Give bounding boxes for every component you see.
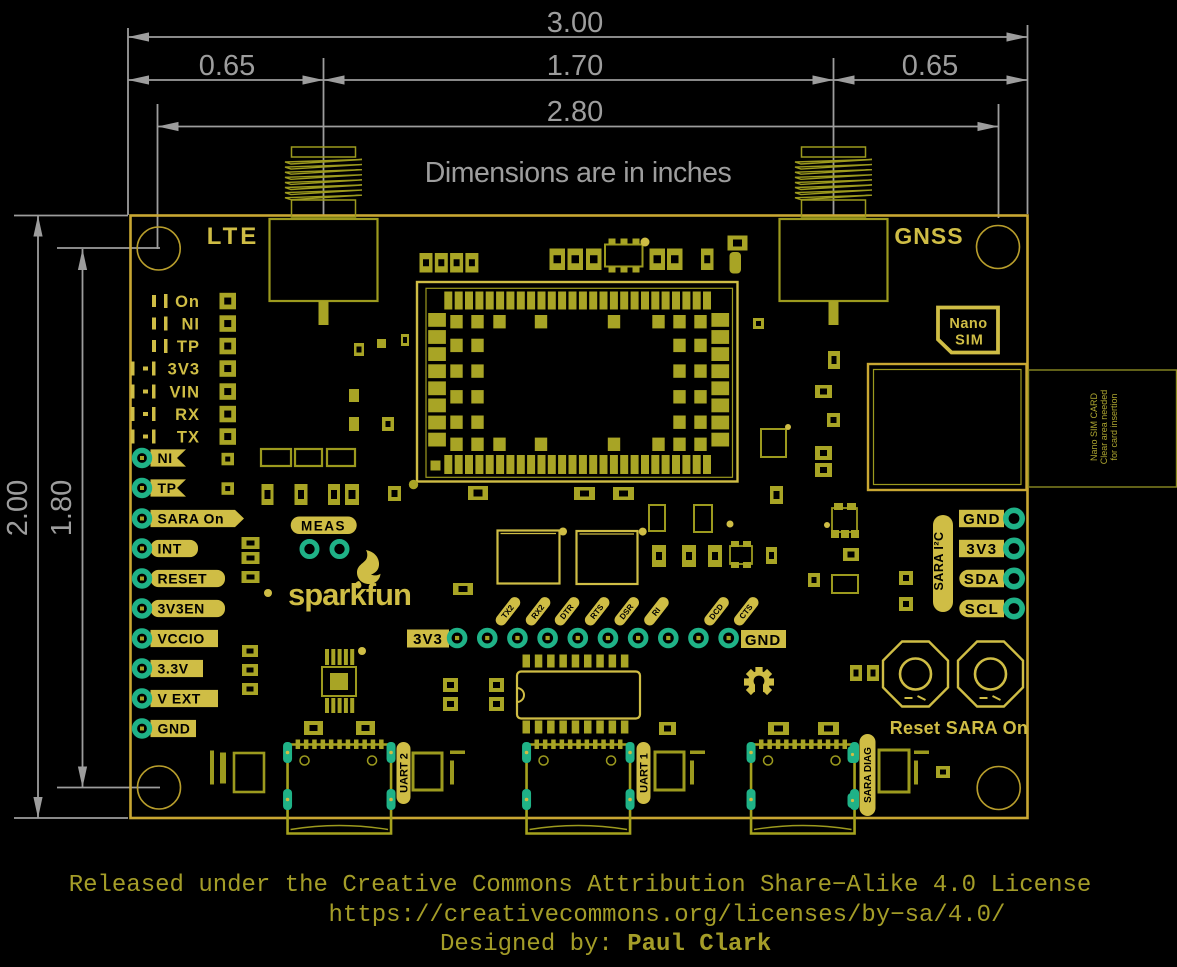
svg-text:Released under the Creative Co: Released under the Creative Commons Attr…	[69, 872, 1092, 899]
svg-text:Nano: Nano	[949, 316, 987, 332]
svg-text:SDA: SDA	[964, 571, 1000, 588]
svg-text:sparkfun: sparkfun	[288, 577, 411, 612]
svg-text:1.80: 1.80	[46, 480, 78, 536]
svg-text:NI: NI	[182, 316, 201, 334]
svg-text:Nano SIM CARD: Nano SIM CARD	[1089, 392, 1099, 461]
svg-text:Designed by: Paul Clark: Designed by: Paul Clark	[440, 931, 771, 958]
svg-text:UART 1: UART 1	[638, 753, 650, 793]
svg-text:GNSS: GNSS	[894, 223, 963, 249]
svg-text:Dimensions are in inches: Dimensions are in inches	[425, 157, 732, 189]
svg-text:INT: INT	[158, 541, 182, 557]
svg-text:V EXT: V EXT	[158, 691, 201, 707]
svg-text:TP: TP	[158, 480, 177, 496]
svg-text:LTE: LTE	[207, 223, 260, 250]
svg-text:3.3V: 3.3V	[158, 661, 189, 677]
svg-text:0.65: 0.65	[199, 50, 255, 82]
svg-text:VIN: VIN	[169, 384, 200, 402]
svg-text:NI: NI	[158, 450, 173, 466]
svg-text:GND: GND	[745, 632, 781, 649]
svg-text:MEAS: MEAS	[301, 519, 346, 534]
svg-text:1.70: 1.70	[547, 50, 603, 82]
svg-text:SARA DIAG: SARA DIAG	[863, 747, 874, 803]
svg-text:0.65: 0.65	[902, 50, 958, 82]
svg-text:SIM: SIM	[955, 333, 984, 349]
svg-text:3V3EN: 3V3EN	[158, 601, 205, 617]
svg-text:3V3: 3V3	[413, 631, 443, 648]
svg-text:GND: GND	[963, 511, 1001, 528]
svg-text:SARA I²C: SARA I²C	[932, 531, 946, 590]
svg-text:2.80: 2.80	[547, 96, 603, 128]
svg-text:On: On	[175, 293, 200, 311]
svg-text:Reset: Reset	[890, 718, 941, 738]
svg-text:RX: RX	[175, 406, 200, 424]
svg-text:SARA On: SARA On	[946, 718, 1028, 738]
svg-text:SCL: SCL	[965, 601, 1000, 618]
svg-text:RESET: RESET	[158, 571, 208, 587]
svg-text:GND: GND	[158, 721, 191, 737]
svg-text:3V3: 3V3	[966, 541, 997, 558]
svg-text:3.00: 3.00	[547, 7, 603, 39]
svg-text:SARA On: SARA On	[158, 511, 225, 527]
svg-text:3V3: 3V3	[168, 361, 200, 379]
svg-text:2.00: 2.00	[2, 480, 34, 536]
svg-text:TX: TX	[177, 429, 200, 447]
svg-text:for card insertion: for card insertion	[1109, 393, 1119, 460]
svg-text:UART 2: UART 2	[398, 753, 410, 793]
svg-text:Clear area needed: Clear area needed	[1099, 390, 1109, 465]
svg-text:TP: TP	[177, 338, 200, 356]
svg-text:VCCIO: VCCIO	[158, 631, 205, 647]
svg-text:https://creativecommons.org/li: https://creativecommons.org/licenses/by−…	[329, 902, 1006, 929]
